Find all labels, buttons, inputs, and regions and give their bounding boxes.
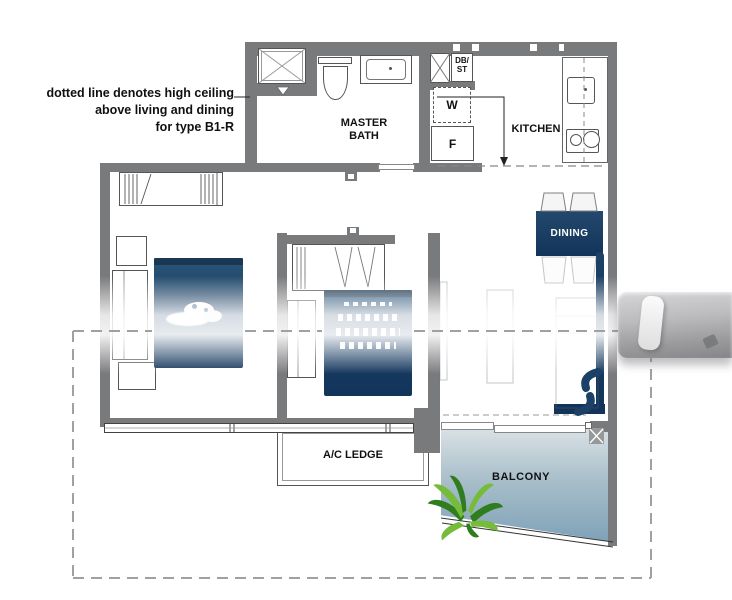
master-wardrobe [119,172,223,206]
faucet-dot-icon [389,67,392,70]
bed-headboard [154,258,243,265]
master-bath-label: MASTER BATH [322,117,406,143]
toilet-tank [318,57,352,64]
side-table [118,362,156,390]
washer-label: W [446,98,457,112]
burner-icon [583,131,600,148]
balcony-label: BALCONY [466,471,576,483]
wall-notch [472,44,479,51]
window-strip [104,423,414,433]
balcony-surface [441,429,608,541]
living-furniture-outline [440,282,598,408]
dining-chair [542,257,596,283]
annotation-line3: for type B1-R [28,119,234,136]
wall-shower-side [306,42,317,96]
wall-top-left [100,163,257,172]
bed-decor-art [166,298,226,332]
annotation-line2: above living and dining [28,102,234,119]
bedroom2-wardrobe [292,244,385,291]
wall-notch [453,44,460,51]
toilet-bowl [323,66,348,100]
bed-pattern-row [344,302,392,306]
db-st-box: DB/ ST [451,53,473,82]
wall-balcony-post [414,408,440,453]
bed-headboard [324,290,412,297]
annotation-line1: dotted line denotes high ceiling [28,85,234,102]
watermark-3d-object [618,292,732,358]
nightstand [116,236,147,266]
wall-notch [348,174,354,179]
ac-unit-icon [589,428,604,444]
wall-notch [530,44,537,51]
wall-bath-left [245,42,257,172]
dining-table: DINING [536,211,603,256]
wall-notch [559,44,564,51]
ac-ledge: A/C LEDGE [277,428,429,486]
db-st-label-line1: DB/ [452,56,472,65]
bedroom2-bed [324,290,412,396]
sliding-door-panel [441,422,494,430]
wall-bath-bottom-a [257,163,380,172]
shower-stall [258,48,306,84]
bed-pattern-row [340,342,396,349]
fridge-label: F [449,137,456,151]
dining-label: DINING [551,228,589,239]
wall-shower-bottom [257,83,307,96]
wall-left [100,163,110,427]
vanity-basin [366,59,406,80]
burner-icon [570,134,582,146]
object-body [618,292,732,358]
bedroom2-desk [287,300,316,378]
wall-bedroom-divider [277,233,287,420]
floor-plan-canvas: MASTER BATH DB/ ST W F KITCHEN [0,0,732,600]
master-bath-label-line1: MASTER [322,117,406,130]
bed-pattern-row [336,328,400,336]
bath-door-leaf [378,164,415,170]
shaft-box [430,53,450,83]
kitchen-label: KITCHEN [496,123,576,135]
living-decor-strip [596,252,604,413]
wall-bedroom2-top [277,235,395,244]
db-st-label-line2: ST [452,65,472,74]
wall-bath-right [419,42,430,172]
ac-ledge-label: A/C LEDGE [278,449,428,461]
bedroom-chaise [112,270,148,360]
sliding-door-panel [494,425,586,433]
bed-pattern-row [338,314,398,321]
fridge-box: F [431,126,474,161]
high-ceiling-annotation: dotted line denotes high ceiling above l… [28,85,234,136]
sliding-door-handle [585,422,592,429]
master-bath-label-line2: BATH [322,130,406,143]
wall-notch [350,228,356,233]
washer-box: W [433,87,471,123]
faucet-dot-icon [584,88,587,91]
wall-bedroom2-right [428,233,440,420]
dining-chair [541,193,597,211]
kitchen-sink [567,77,595,104]
master-bed [154,258,243,368]
living-console-bar [554,404,605,414]
wall-right [608,42,617,546]
